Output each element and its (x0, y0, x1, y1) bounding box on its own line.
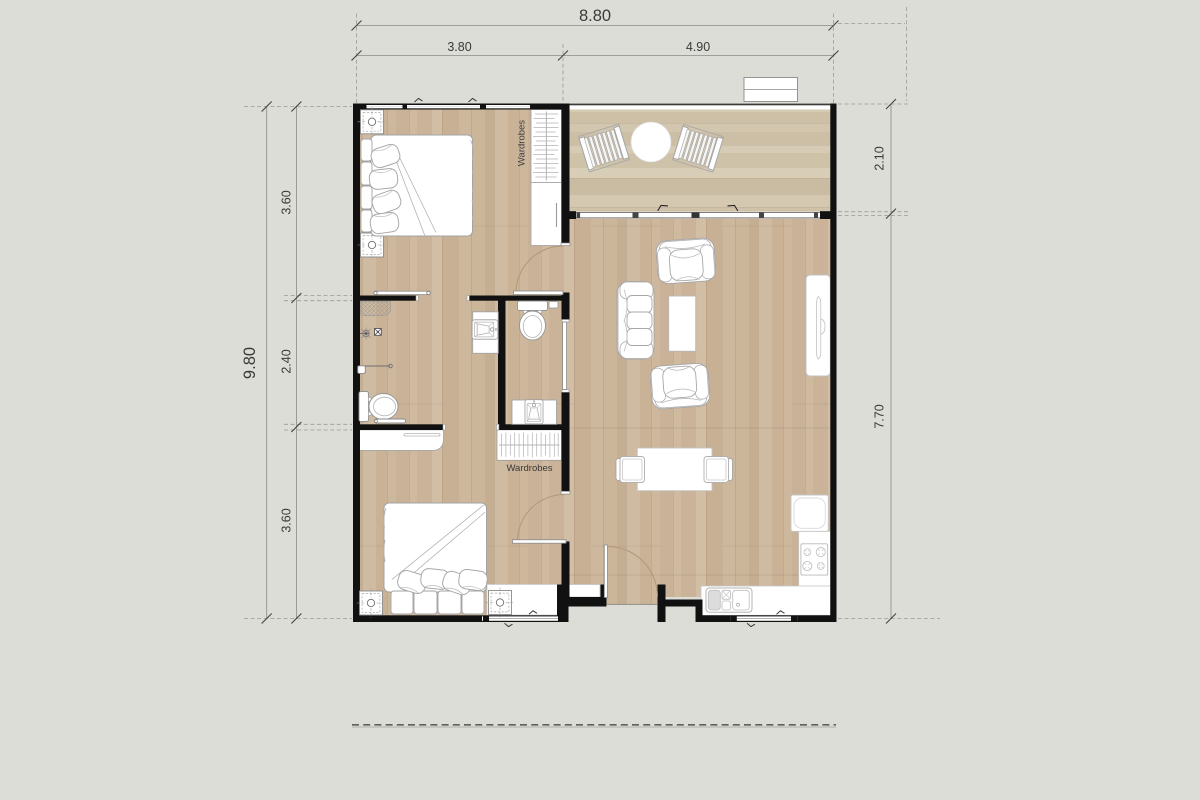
svg-text:Wardrobes: Wardrobes (506, 463, 552, 474)
svg-text:7.70: 7.70 (873, 404, 887, 428)
svg-text:2.40: 2.40 (280, 349, 294, 373)
svg-text:Wardrobes: Wardrobes (517, 120, 528, 166)
svg-text:9.80: 9.80 (241, 347, 259, 379)
svg-text:3.60: 3.60 (280, 508, 294, 532)
svg-text:4.90: 4.90 (686, 40, 710, 54)
svg-text:3.60: 3.60 (280, 190, 294, 214)
svg-text:2.10: 2.10 (873, 146, 887, 170)
svg-text:3.80: 3.80 (447, 40, 471, 54)
svg-text:8.80: 8.80 (579, 7, 611, 25)
